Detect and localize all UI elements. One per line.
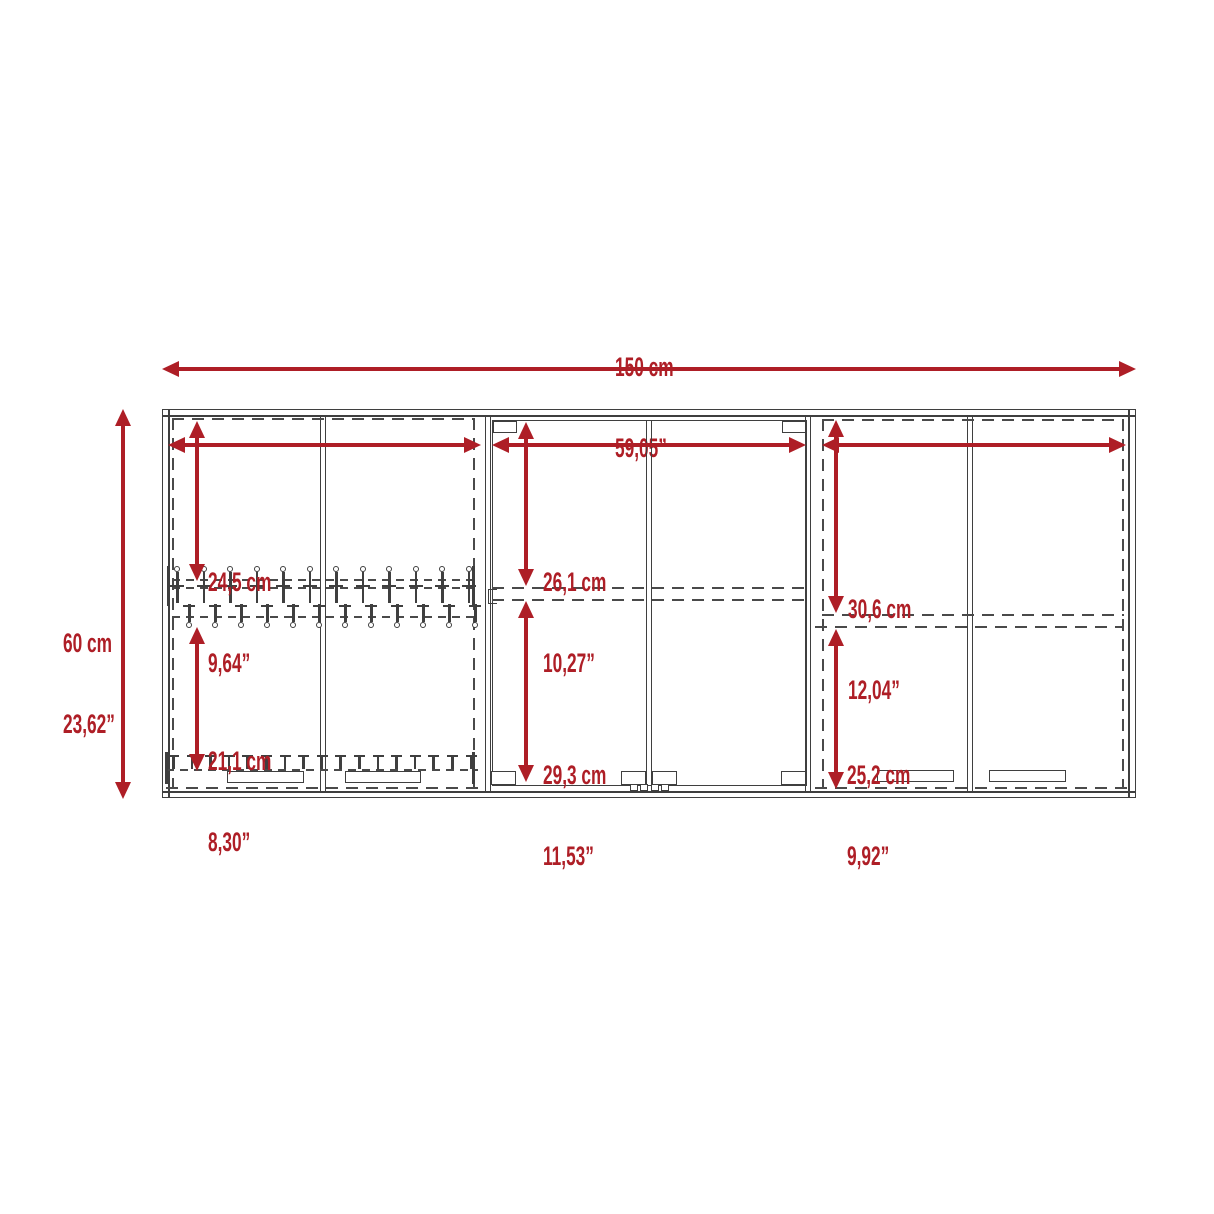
right-section-width-arrow (839, 443, 1109, 447)
center-foot-3 (651, 784, 659, 791)
hook-bottom (395, 756, 398, 769)
overall-height-cm: 60 cm (63, 630, 115, 657)
hook-upper (309, 572, 312, 603)
left-bottom-label: 21,1 cm 8,30” (208, 694, 271, 910)
hook-upper (388, 572, 391, 603)
right-top-in: 12,04” (848, 677, 911, 704)
left-bottom-in: 8,30” (208, 829, 271, 856)
left-top-height-arrow (195, 438, 199, 564)
middle-bottom-cm: 29,3 cm (543, 762, 606, 789)
rail-end-bracket-right (472, 566, 475, 606)
cabinet-right-inner-line (1128, 409, 1130, 798)
middle-bottom-height-arrow (524, 618, 528, 765)
hook-bottom (284, 756, 287, 769)
hinge-top-right (782, 421, 806, 433)
hinge-top-left (493, 421, 517, 433)
middle-top-cm: 26,1 cm (543, 569, 606, 596)
middle-shelf-dashed-2 (492, 599, 807, 601)
hook-bottom (172, 756, 175, 769)
right-bottom-label: 25,2 cm 9,92” (847, 708, 910, 924)
right-top-cm: 30,6 cm (848, 596, 911, 623)
hook-bottom (339, 756, 342, 769)
hook-lower (396, 604, 399, 622)
center-foot-4 (661, 784, 669, 791)
overall-height-label: 60 cm 23,62” (63, 576, 115, 792)
hook-upper (282, 572, 285, 603)
divider-right-doors (967, 415, 973, 792)
hook-lower (448, 604, 451, 622)
middle-section-width-arrow (509, 443, 789, 447)
door-handle-right-2 (989, 770, 1066, 782)
middle-bottom-label: 29,3 cm 11,53” (543, 708, 606, 924)
left-top-in: 9,64” (208, 650, 271, 677)
cabinet-bottom-inner-line (162, 791, 1136, 793)
right-bottom-in: 9,92” (847, 843, 910, 870)
middle-top-in: 10,27” (543, 650, 606, 677)
hinge-bottom-inner-right (652, 771, 677, 785)
left-unit-dashed-left (172, 418, 174, 788)
right-unit-dashed-left (822, 419, 824, 788)
hook-lower (422, 604, 425, 622)
middle-bottom-in: 11,53” (543, 843, 606, 870)
middle-top-height-arrow (524, 439, 528, 569)
hook-bottom (377, 756, 380, 769)
left-bottom-cm: 21,1 cm (208, 748, 271, 775)
overall-width-arrow (179, 367, 1119, 371)
hook-lower (318, 604, 321, 622)
center-foot-1 (630, 784, 638, 791)
overall-height-in: 23,62” (63, 711, 115, 738)
hook-upper (362, 572, 365, 603)
bottom-rail-end-left (165, 752, 168, 784)
hook-upper (468, 572, 471, 603)
hook-bottom (358, 756, 361, 769)
cabinet-top-inner-line (162, 415, 1136, 417)
left-top-cm: 24,5 cm (208, 569, 271, 596)
hook-bottom (414, 756, 417, 769)
left-section-width-arrow (185, 443, 464, 447)
left-unit-dashed-top (172, 418, 475, 420)
hook-lower (370, 604, 373, 622)
hook-bottom (321, 756, 324, 769)
right-bottom-cm: 25,2 cm (847, 762, 910, 789)
hook-bottom (451, 756, 454, 769)
hook-bottom (302, 756, 305, 769)
hinge-bottom-inner-left (621, 771, 646, 785)
right-bottom-height-arrow (834, 646, 838, 772)
hook-lower (344, 604, 347, 622)
hook-upper (441, 572, 444, 603)
door-handle-left-2 (345, 771, 421, 783)
dimension-diagram: 150 cm 59,05” 60 cm 23,62” (0, 0, 1214, 1214)
center-foot-2 (640, 784, 648, 791)
right-top-height-arrow (834, 437, 838, 596)
rail-end-bracket-left (167, 566, 170, 606)
hook-upper (176, 572, 179, 603)
hook-upper (335, 572, 338, 603)
hook-lower (188, 604, 191, 622)
middle-top-label: 26,1 cm 10,27” (543, 515, 606, 731)
hinge-bottom-outer-left (491, 771, 516, 785)
right-unit-dashed-right (1122, 419, 1124, 788)
hook-bottom (432, 756, 435, 769)
glass-doors-outline (492, 420, 807, 786)
bottom-rail-end-right (472, 752, 475, 784)
hinge-bottom-outer-right (781, 771, 806, 785)
hook-lower (474, 604, 477, 622)
hook-lower (292, 604, 295, 622)
right-unit-dashed-top (822, 419, 1124, 421)
middle-shelf-dashed-1 (492, 587, 807, 589)
hook-upper (415, 572, 418, 603)
overall-height-arrow (121, 426, 125, 782)
left-bottom-height-arrow (195, 644, 199, 754)
